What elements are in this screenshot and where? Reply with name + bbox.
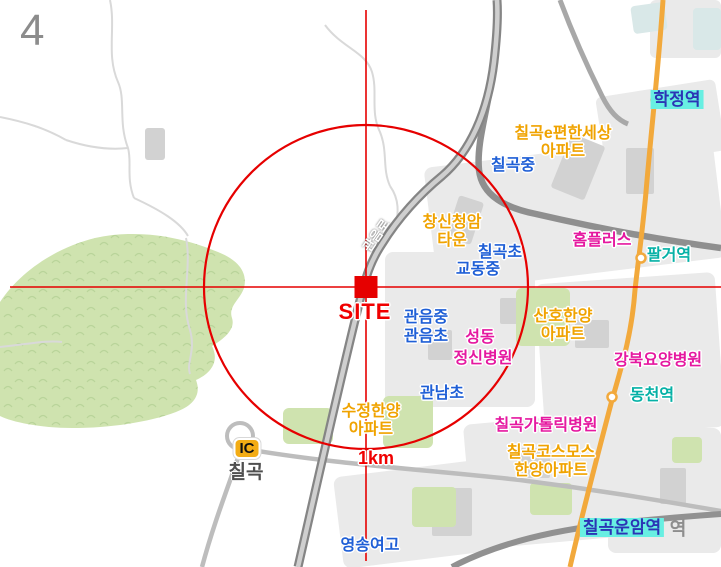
map-label-ghost-station-suffix: 역 xyxy=(670,519,687,540)
map-label-sanho-hanyang-apt: 산호한양 아파트 xyxy=(534,308,593,344)
map-label-yeongsong-girls-high: 영송여고 xyxy=(341,537,400,555)
map-label-1km: 1km xyxy=(358,448,394,469)
map-label-chilgok-cosmos-hanyang-apt: 칠곡코스모스 한양아파트 xyxy=(507,444,595,480)
map-label-gwaneum-ro-road: 관음로 xyxy=(361,217,394,255)
map-label-homeplus: 홈플러스 xyxy=(573,232,632,250)
map-label-dongcheon-station: 동천역 xyxy=(630,387,674,405)
map-label-sujeong-hanyang-apt: 수정한양 아파트 xyxy=(342,403,401,439)
map-label-chilgok-elementary: 칠곡초 xyxy=(478,244,522,262)
page-number: 4 xyxy=(20,6,44,56)
map-label-jeongsin-hospital: 정신병원 xyxy=(454,350,513,368)
map-label-chilgok-ic: 칠곡 xyxy=(229,462,264,484)
map-label-layer: 역학정역칠곡e편한세상 아파트칠곡중창신청암 타운칠곡초교동중홈플러스팔거역SI… xyxy=(0,0,721,567)
map-label-gyodong-middle-school: 교동중 xyxy=(456,261,500,279)
map-label-gwaneum-elementary: 관음초 xyxy=(404,328,448,346)
map-label-site: SITE xyxy=(339,299,392,324)
map-label-hakjeong-station: 학정역 xyxy=(651,90,704,109)
site-location-map-page: 역학정역칠곡e편한세상 아파트칠곡중창신청암 타운칠곡초교동중홈플러스팔거역SI… xyxy=(0,0,721,567)
map-label-gangbuk-nursing-hospital: 강북요양병원 xyxy=(614,352,702,370)
ic-badge: IC xyxy=(234,438,261,459)
map-label-chilgok-epyeonhansesang-apt: 칠곡e편한세상 아파트 xyxy=(514,125,611,161)
map-label-gwannam-elementary: 관남초 xyxy=(420,385,464,403)
map-label-gwaneum-middle-school: 관음중 xyxy=(404,309,448,327)
map-label-changsin-cheongam-town: 창신청암 타운 xyxy=(423,214,482,250)
map-label-chilgok-catholic-hospital: 칠곡가톨릭병원 xyxy=(494,417,597,435)
map-label-seongdong: 성동 xyxy=(465,329,494,347)
map-label-palgeo-station: 팔거역 xyxy=(647,247,691,265)
map-label-chilgok-unam-station: 칠곡운암역 xyxy=(580,518,664,537)
map-label-chilgok-middle-school: 칠곡중 xyxy=(491,157,535,175)
